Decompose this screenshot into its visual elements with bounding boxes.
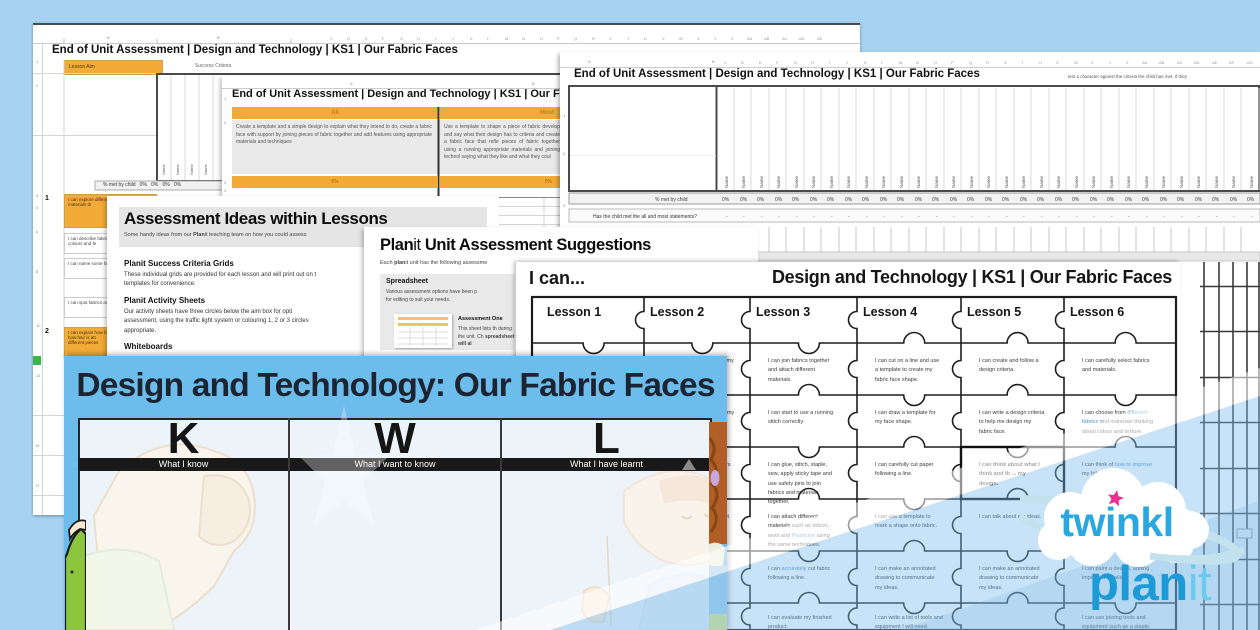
svg-text:Name: Name xyxy=(1179,175,1184,188)
svg-text:Name: Name xyxy=(759,175,764,188)
svg-text:0%: 0% xyxy=(1195,197,1203,203)
svg-text:0%: 0% xyxy=(1072,197,1080,203)
svg-text:0%: 0% xyxy=(1020,197,1028,203)
svg-text:Name: Name xyxy=(1144,175,1149,188)
svg-text:0%: 0% xyxy=(845,197,853,203)
svg-text:0%: 0% xyxy=(1002,197,1010,203)
svg-text:Name: Name xyxy=(741,175,746,188)
svg-text:Name: Name xyxy=(1196,175,1201,188)
svg-text:0%: 0% xyxy=(1142,197,1150,203)
svg-text:Name: Name xyxy=(1161,175,1166,188)
svg-text:Name: Name xyxy=(1091,175,1096,188)
svg-text:Name: Name xyxy=(1074,175,1079,188)
svg-text:Name: Name xyxy=(1126,175,1131,188)
svg-text:0%: 0% xyxy=(1160,197,1168,203)
svg-text:Name: Name xyxy=(916,175,921,188)
svg-text:Name: Name xyxy=(846,175,851,188)
svg-text:Name: Name xyxy=(1021,175,1026,188)
svg-text:Name: Name xyxy=(864,175,869,188)
svg-text:0%: 0% xyxy=(1107,197,1115,203)
svg-text:Name: Name xyxy=(829,175,834,188)
svg-text:0%: 0% xyxy=(1230,197,1238,203)
svg-text:Name: Name xyxy=(969,175,974,188)
svg-text:Name: Name xyxy=(951,175,956,188)
svg-text:Name: Name xyxy=(1231,175,1236,188)
svg-text:Name: Name xyxy=(934,175,939,188)
svg-text:0%: 0% xyxy=(757,197,765,203)
svg-text:0%: 0% xyxy=(740,197,748,203)
svg-text:0%: 0% xyxy=(1212,197,1220,203)
svg-text:Name: Name xyxy=(1214,175,1219,188)
svg-text:0%: 0% xyxy=(1055,197,1063,203)
svg-text:0%: 0% xyxy=(880,197,888,203)
svg-text:Name: Name xyxy=(899,175,904,188)
svg-text:0%: 0% xyxy=(915,197,923,203)
svg-text:Name: Name xyxy=(1039,175,1044,188)
svg-text:Name: Name xyxy=(1004,175,1009,188)
svg-text:0%: 0% xyxy=(950,197,958,203)
svg-text:Name: Name xyxy=(986,175,991,188)
svg-text:Name: Name xyxy=(881,175,886,188)
svg-text:0%: 0% xyxy=(792,197,800,203)
svg-text:0%: 0% xyxy=(862,197,870,203)
svg-text:Name: Name xyxy=(776,175,781,188)
svg-text:0%: 0% xyxy=(1247,197,1255,203)
svg-text:0%: 0% xyxy=(967,197,975,203)
svg-text:0%: 0% xyxy=(1125,197,1133,203)
svg-text:0%: 0% xyxy=(1037,197,1045,203)
svg-text:0%: 0% xyxy=(810,197,818,203)
svg-text:0%: 0% xyxy=(932,197,940,203)
svg-text:0%: 0% xyxy=(1090,197,1098,203)
svg-text:% met by child: % met by child xyxy=(655,197,688,203)
svg-text:0%: 0% xyxy=(722,197,730,203)
svg-text:Name: Name xyxy=(724,175,729,188)
svg-text:Name: Name xyxy=(811,175,816,188)
svg-text:Has the child met the all and: Has the child met the all and most state… xyxy=(593,214,697,220)
svg-text:0%: 0% xyxy=(897,197,905,203)
svg-text:twinkl: twinkl xyxy=(1060,499,1173,545)
svg-text:Name: Name xyxy=(1056,175,1061,188)
svg-text:0%: 0% xyxy=(985,197,993,203)
svg-text:0%: 0% xyxy=(775,197,783,203)
svg-text:0%: 0% xyxy=(1177,197,1185,203)
svg-text:Name: Name xyxy=(1249,175,1254,188)
svg-text:Name: Name xyxy=(794,175,799,188)
svg-text:Name: Name xyxy=(1109,175,1114,188)
svg-text:0%: 0% xyxy=(827,197,835,203)
